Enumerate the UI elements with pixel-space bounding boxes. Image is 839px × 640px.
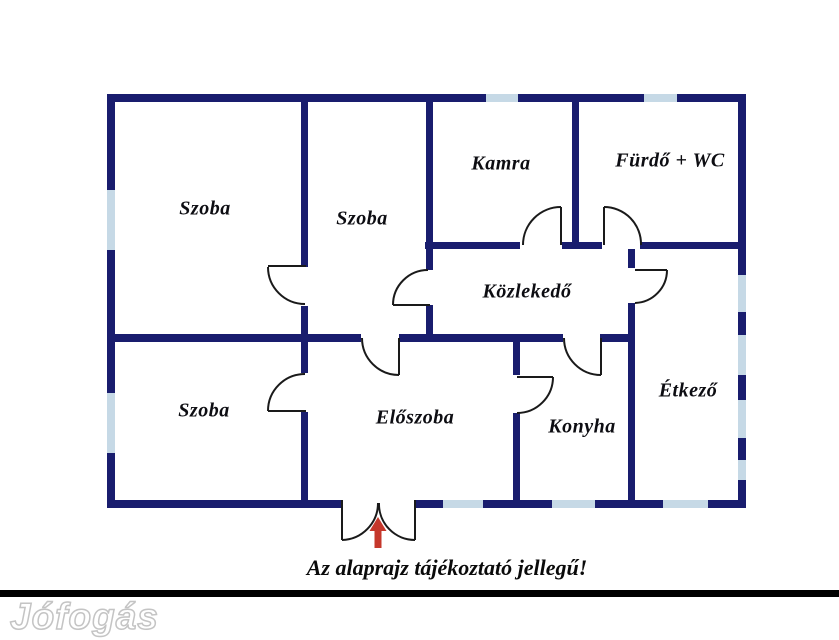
door-arc-konyha-north [564, 338, 601, 375]
door-arc-etkezo [635, 270, 667, 303]
room-label-konyha: Konyha [548, 416, 615, 439]
disclaimer-caption: Az alaprajz tájékoztató jellegű! [307, 555, 588, 581]
door-arc-kamra [523, 207, 561, 245]
door-arc-konyha-west [517, 377, 553, 413]
entrance-arc-right [379, 503, 415, 540]
room-label-kamra: Kamra [471, 153, 530, 176]
entrance-arc-left [342, 503, 378, 540]
door-arc-eloszoba [362, 338, 399, 375]
jofogas-watermark: Jófogás [10, 596, 159, 638]
room-label-etkezo: Étkező [659, 380, 718, 403]
door-arc-furdo [604, 207, 641, 245]
door-arc-szoba2 [393, 270, 428, 305]
room-label-kozlekedo: Közlekedő [483, 281, 572, 304]
door-arc-szoba3 [268, 374, 305, 411]
room-label-szoba-bottom-left: Szoba [178, 400, 229, 423]
door-arc-szoba1-szoba2 [268, 267, 305, 304]
room-label-eloszoba: Előszoba [376, 407, 454, 430]
room-label-szoba-top-left: Szoba [179, 198, 230, 221]
room-label-szoba-top-middle: Szoba [336, 208, 387, 231]
doors-layer [0, 0, 839, 640]
room-label-furdo-wc: Fürdő + WC [615, 150, 724, 173]
floorplan-screenshot: Szoba Szoba Kamra Fürdő + WC Közlekedő S… [0, 0, 839, 640]
